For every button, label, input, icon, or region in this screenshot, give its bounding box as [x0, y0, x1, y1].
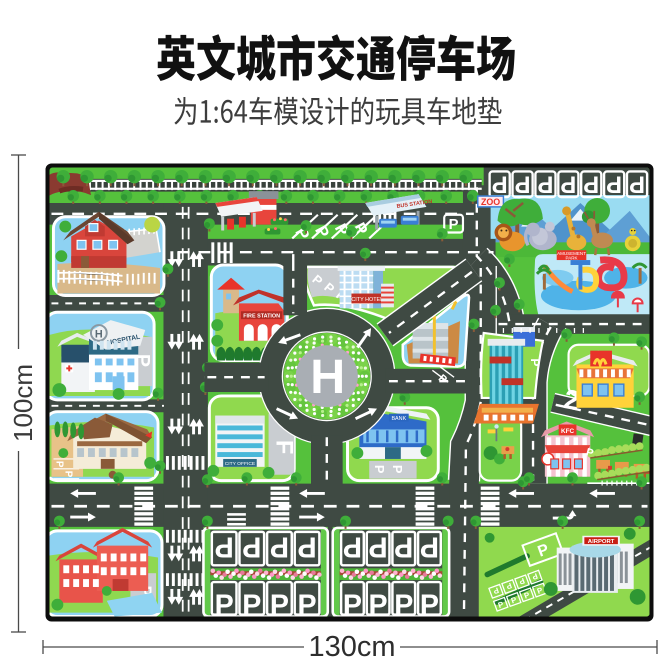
svg-text:PARK: PARK: [566, 256, 578, 261]
svg-text:P: P: [606, 170, 622, 196]
svg-text:P: P: [242, 531, 261, 563]
svg-text:H: H: [95, 328, 103, 340]
svg-text:P: P: [449, 217, 459, 233]
svg-text:H: H: [310, 350, 345, 404]
svg-text:KFC: KFC: [561, 428, 575, 435]
svg-text:P: P: [420, 531, 439, 563]
svg-text:P: P: [538, 170, 554, 196]
svg-text:P: P: [215, 531, 234, 563]
svg-text:P: P: [343, 531, 362, 563]
svg-text:P: P: [394, 531, 413, 563]
svg-text:BANK: BANK: [391, 416, 406, 422]
svg-text:P: P: [515, 170, 531, 196]
svg-text:130cm: 130cm: [308, 631, 395, 663]
svg-text:ZOO: ZOO: [481, 197, 500, 207]
svg-text:CITY HOTEL: CITY HOTEL: [351, 297, 383, 303]
svg-text:F: F: [270, 440, 296, 454]
svg-text:FIRE STATION: FIRE STATION: [243, 314, 280, 320]
svg-text:100cm: 100cm: [8, 364, 38, 442]
svg-text:P: P: [62, 471, 73, 478]
svg-text:AIRPORT: AIRPORT: [588, 539, 615, 545]
svg-text:P: P: [53, 461, 64, 468]
svg-text:P: P: [583, 170, 599, 196]
svg-text:P: P: [390, 465, 405, 474]
svg-text:CITY OFFICE: CITY OFFICE: [225, 461, 256, 467]
svg-text:P: P: [492, 170, 508, 196]
svg-text:P: P: [298, 531, 317, 563]
svg-text:P: P: [369, 531, 388, 563]
svg-text:P: P: [629, 170, 645, 196]
svg-text:P: P: [528, 359, 542, 367]
svg-text:P: P: [270, 531, 289, 563]
svg-text:P: P: [372, 465, 387, 474]
svg-text:P: P: [560, 170, 576, 196]
